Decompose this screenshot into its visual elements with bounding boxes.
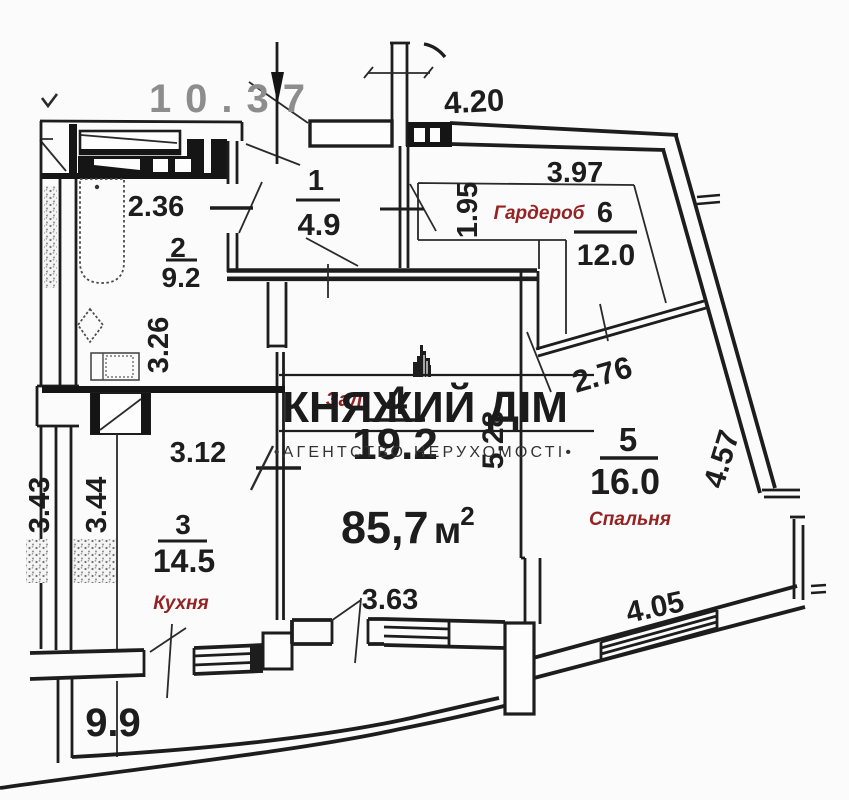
svg-text:9.9: 9.9 [85,701,141,745]
svg-text:КНЯЖИЙ ДІМ: КНЯЖИЙ ДІМ [282,381,568,432]
svg-text:3: 3 [175,509,191,540]
svg-text:•АГЕНТСТВО НЕРУХОМОСТІ•: •АГЕНТСТВО НЕРУХОМОСТІ• [274,444,574,461]
svg-text:Гардероб: Гардероб [494,203,586,224]
svg-text:3.44: 3.44 [81,477,113,533]
svg-text:Спальня: Спальня [589,509,671,530]
svg-text:1: 1 [308,165,324,197]
svg-text:3.63: 3.63 [362,584,418,616]
svg-text:Кухня: Кухня [153,593,208,614]
svg-text:2: 2 [170,232,186,263]
svg-text:3.26: 3.26 [143,317,175,373]
svg-text:3.12: 3.12 [170,437,226,469]
svg-text:9.2: 9.2 [162,262,201,293]
svg-text:4.9: 4.9 [297,207,340,242]
svg-text:10.37: 10.37 [149,77,319,121]
svg-text:4.20: 4.20 [443,82,505,120]
svg-text:3.43: 3.43 [24,477,56,533]
svg-text:6: 6 [597,197,613,229]
svg-text:12.0: 12.0 [577,239,635,272]
svg-text:14.5: 14.5 [153,543,215,579]
svg-text:5: 5 [619,421,637,458]
svg-text:1.95: 1.95 [452,182,484,238]
svg-text:2.36: 2.36 [128,191,184,223]
svg-text:3.97: 3.97 [547,157,603,189]
svg-text:16.0: 16.0 [590,461,660,502]
